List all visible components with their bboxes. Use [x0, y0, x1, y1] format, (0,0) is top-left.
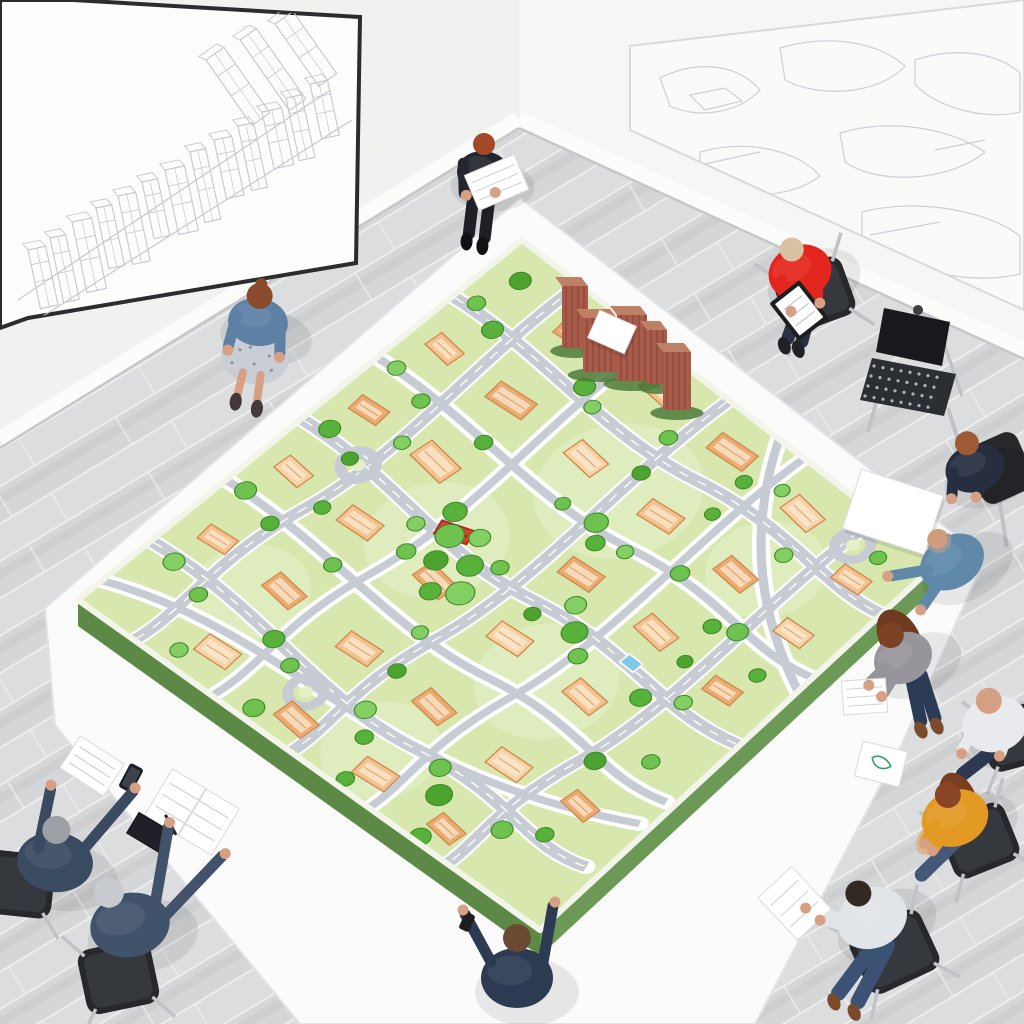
arm: [462, 163, 465, 193]
hand: [550, 897, 561, 908]
leg: [257, 375, 261, 401]
arm: [946, 473, 960, 494]
head: [503, 924, 531, 952]
scene-svg: [0, 0, 1024, 1024]
webcam: [913, 305, 923, 315]
leg: [238, 372, 243, 394]
hand: [458, 905, 469, 916]
arm: [276, 321, 284, 353]
photo-stage: [0, 0, 1024, 1024]
